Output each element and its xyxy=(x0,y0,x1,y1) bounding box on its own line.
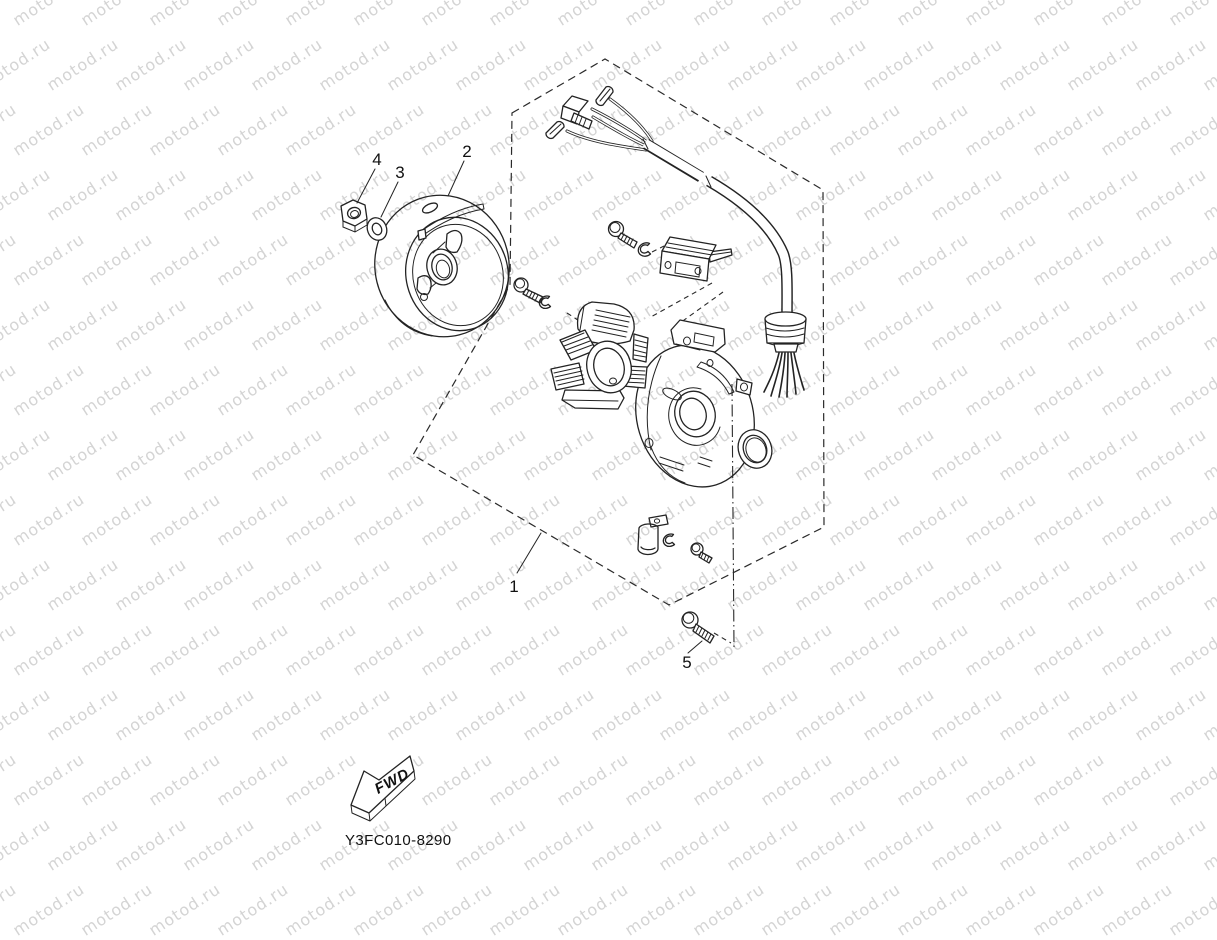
callout-label-1: 1 xyxy=(509,577,518,596)
callout-label-2: 2 xyxy=(462,142,471,161)
nut xyxy=(341,200,367,232)
clamp-tab xyxy=(649,515,668,527)
callout-label-3: 3 xyxy=(395,163,404,182)
multi-pin-connector xyxy=(561,96,592,129)
spring-washer xyxy=(663,534,674,546)
stator-screw-set xyxy=(514,278,551,308)
callouts: 1 2 3 4 5 xyxy=(357,142,702,672)
callout-label-4: 4 xyxy=(372,150,381,169)
spring-washer xyxy=(539,296,550,308)
parts-diagram: 1 2 3 4 5 FWD Y3FC010-8290 xyxy=(0,0,1217,913)
figure-code: Y3FC010-8290 xyxy=(345,832,452,849)
flywheel-rotor xyxy=(360,181,524,351)
wire-clamp-set xyxy=(638,515,712,563)
fwd-arrow: FWD xyxy=(351,756,415,821)
leader-3 xyxy=(381,182,398,217)
oil-seal xyxy=(733,425,777,473)
pickup-screw-set xyxy=(609,222,651,257)
spring-washer xyxy=(638,243,650,256)
page: { "watermark": { "text": "motod.ru", "co… xyxy=(0,0,1217,913)
leader-2 xyxy=(448,161,464,196)
grommet xyxy=(765,312,806,352)
stator-assembly xyxy=(551,302,648,409)
plate-bracket xyxy=(671,320,725,352)
screw-part-5 xyxy=(682,612,714,643)
pickup-coil-unit xyxy=(660,237,732,281)
leader-5 xyxy=(688,641,702,653)
washer xyxy=(364,215,390,243)
leader-1 xyxy=(517,533,541,573)
wire-ends xyxy=(764,353,804,397)
leader-4 xyxy=(357,169,375,203)
callout-label-5: 5 xyxy=(682,653,691,672)
